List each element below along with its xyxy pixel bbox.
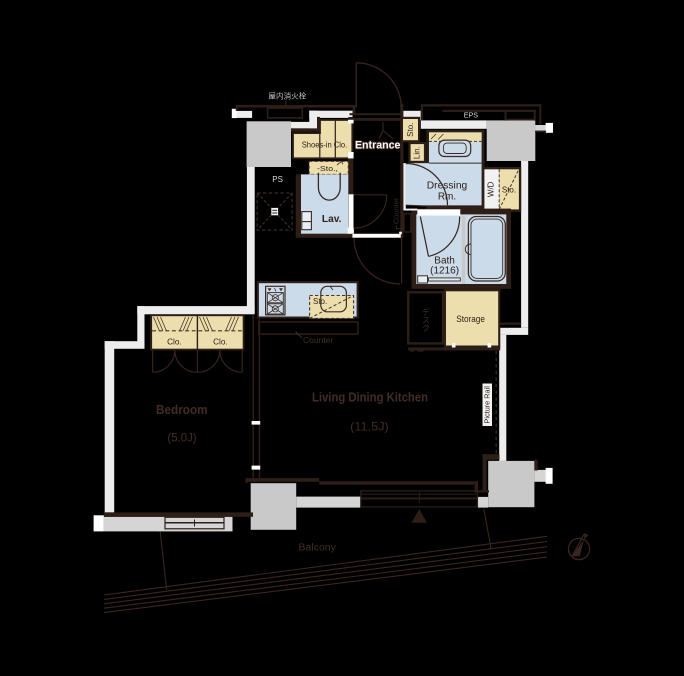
svg-text:Entrance: Entrance xyxy=(355,140,401,152)
svg-text:Dressing: Dressing xyxy=(427,180,468,191)
svg-text:(1216): (1216) xyxy=(430,266,459,277)
svg-text:Counter: Counter xyxy=(391,197,400,224)
svg-text:Shoes-in Clo.: Shoes-in Clo. xyxy=(302,140,348,149)
svg-text:(11.5J): (11.5J) xyxy=(350,420,389,434)
svg-text:PS: PS xyxy=(272,175,283,184)
svg-text:Clo.: Clo. xyxy=(167,338,182,347)
svg-text:Living Dining Kitchen: Living Dining Kitchen xyxy=(312,391,428,405)
svg-text:Sto.: Sto. xyxy=(502,185,516,194)
svg-text:Sto.: Sto. xyxy=(406,123,415,137)
svg-text:Lin.: Lin. xyxy=(413,146,422,159)
svg-text:W/D: W/D xyxy=(487,181,496,197)
svg-text:屋内消火栓: 屋内消火栓 xyxy=(268,91,306,101)
svg-text:Storage: Storage xyxy=(456,314,485,324)
svg-text:Clo.: Clo. xyxy=(213,338,228,347)
svg-text:デスク: デスク xyxy=(422,307,430,333)
svg-text:-Sto.,: -Sto., xyxy=(317,164,338,173)
svg-text:Picture Rail: Picture Rail xyxy=(482,386,491,424)
svg-text:Lav.: Lav. xyxy=(322,214,342,225)
svg-text:(5.0J): (5.0J) xyxy=(167,430,196,444)
svg-text:Bedroom: Bedroom xyxy=(156,402,208,417)
svg-text:Sto.: Sto. xyxy=(313,297,327,306)
svg-text:Counter: Counter xyxy=(303,335,333,345)
svg-text:Balcony: Balcony xyxy=(299,542,336,553)
svg-text:EPS: EPS xyxy=(464,111,479,120)
